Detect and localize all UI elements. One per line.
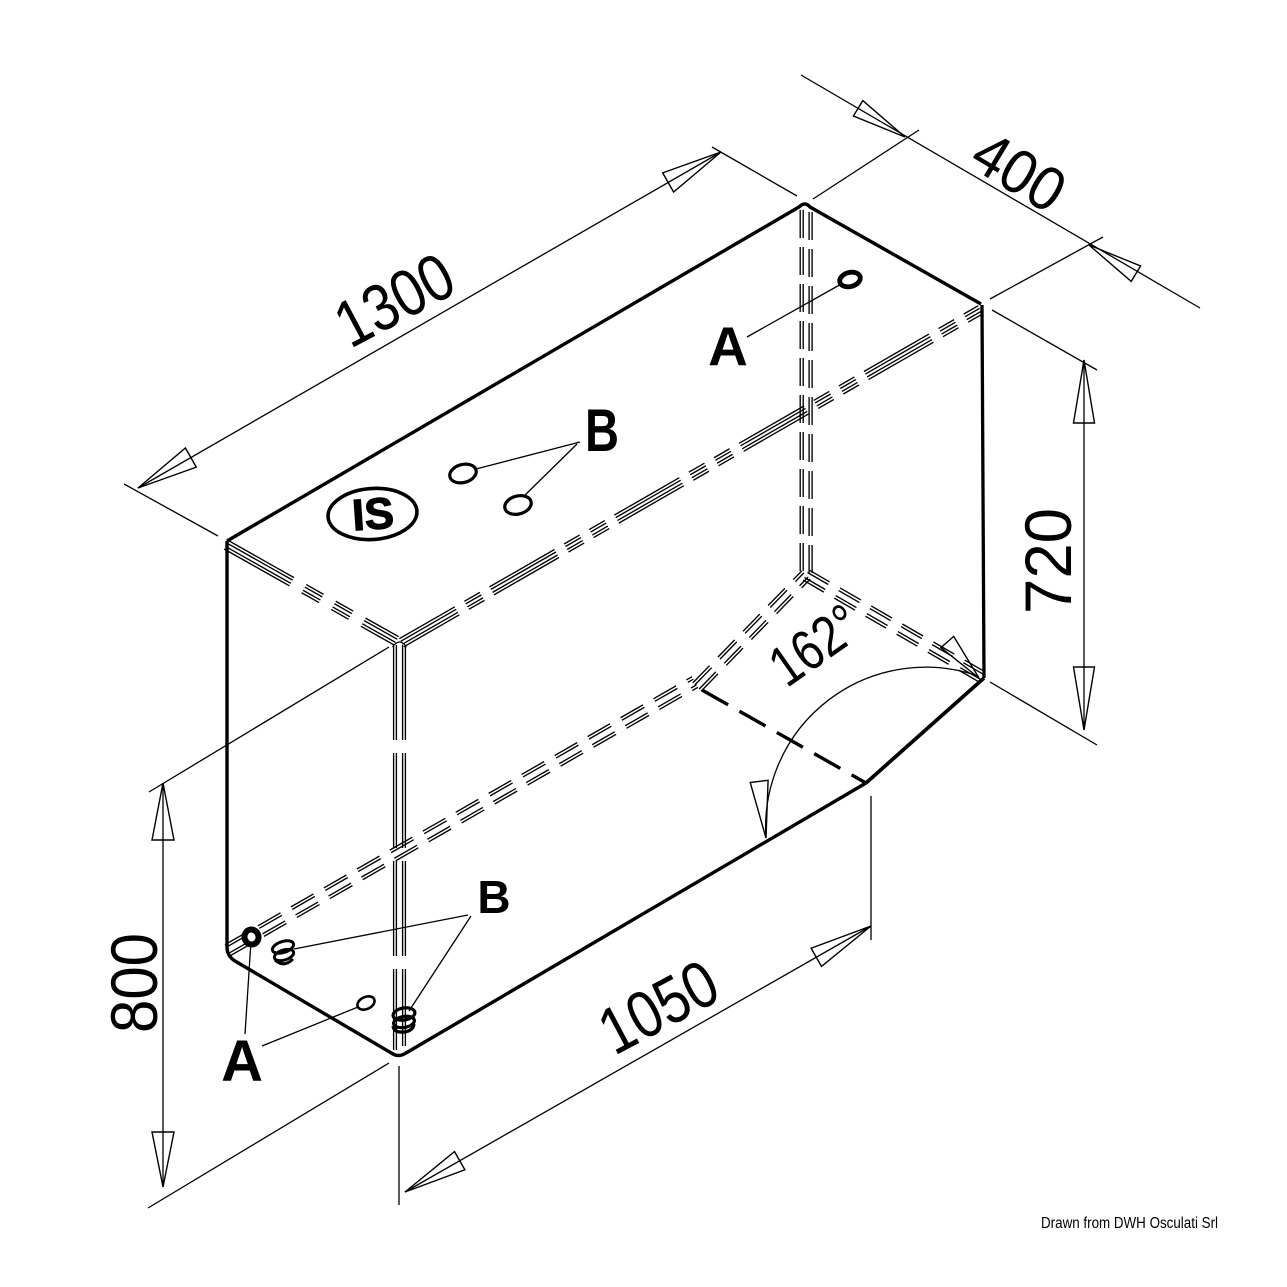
svg-text:B: B bbox=[585, 397, 619, 464]
svg-text:B: B bbox=[477, 871, 510, 923]
svg-text:A: A bbox=[221, 1029, 263, 1094]
svg-text:800: 800 bbox=[97, 933, 171, 1033]
svg-text:Drawn from DWH Osculati Srl: Drawn from DWH Osculati Srl bbox=[1041, 1215, 1218, 1232]
svg-text:IS: IS bbox=[351, 489, 396, 541]
svg-text:A: A bbox=[708, 315, 748, 377]
svg-text:720: 720 bbox=[1011, 508, 1085, 614]
